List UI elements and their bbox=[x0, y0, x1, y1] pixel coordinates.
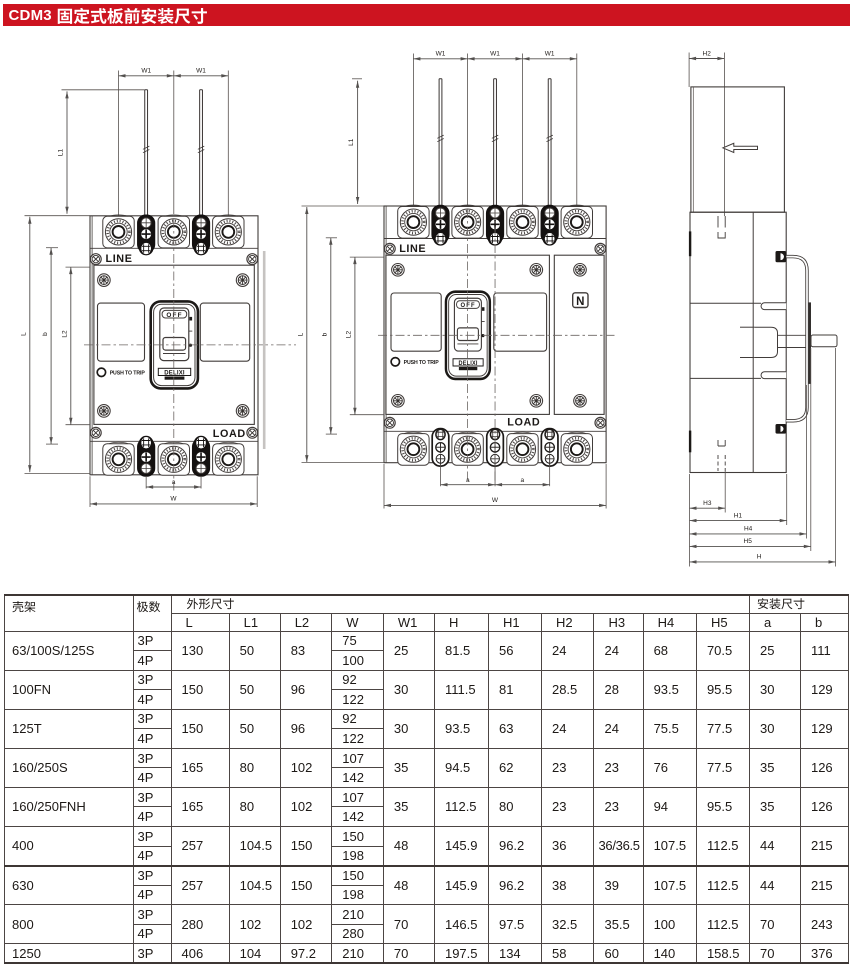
svg-text:H1: H1 bbox=[734, 512, 743, 519]
svg-text:LOAD: LOAD bbox=[213, 428, 246, 440]
svg-text:W: W bbox=[492, 497, 499, 504]
svg-text:H: H bbox=[757, 554, 762, 561]
svg-text:H3: H3 bbox=[703, 500, 712, 507]
svg-text:N: N bbox=[576, 296, 584, 308]
svg-text:a: a bbox=[466, 477, 470, 484]
svg-text:LOAD: LOAD bbox=[507, 417, 540, 429]
svg-text:W1: W1 bbox=[545, 51, 555, 58]
svg-text:LINE: LINE bbox=[399, 243, 426, 255]
svg-text:a: a bbox=[520, 477, 524, 484]
svg-text:LINE: LINE bbox=[106, 253, 133, 265]
svg-text:H2: H2 bbox=[703, 50, 712, 57]
svg-text:L1: L1 bbox=[58, 149, 65, 157]
svg-text:H4: H4 bbox=[744, 526, 753, 533]
svg-text:L2: L2 bbox=[346, 331, 353, 339]
svg-text:L1: L1 bbox=[348, 138, 355, 146]
svg-text:L: L bbox=[297, 332, 304, 336]
svg-text:W1: W1 bbox=[490, 51, 500, 58]
svg-text:W1: W1 bbox=[436, 51, 446, 58]
svg-text:H5: H5 bbox=[744, 538, 753, 545]
svg-text:W1: W1 bbox=[141, 68, 151, 75]
svg-text:W: W bbox=[170, 496, 177, 503]
svg-text:L2: L2 bbox=[61, 330, 68, 338]
svg-text:b: b bbox=[321, 332, 328, 336]
svg-text:b: b bbox=[42, 332, 49, 336]
svg-text:L: L bbox=[20, 332, 27, 336]
svg-text:W1: W1 bbox=[196, 68, 206, 75]
svg-text:a: a bbox=[172, 479, 176, 486]
